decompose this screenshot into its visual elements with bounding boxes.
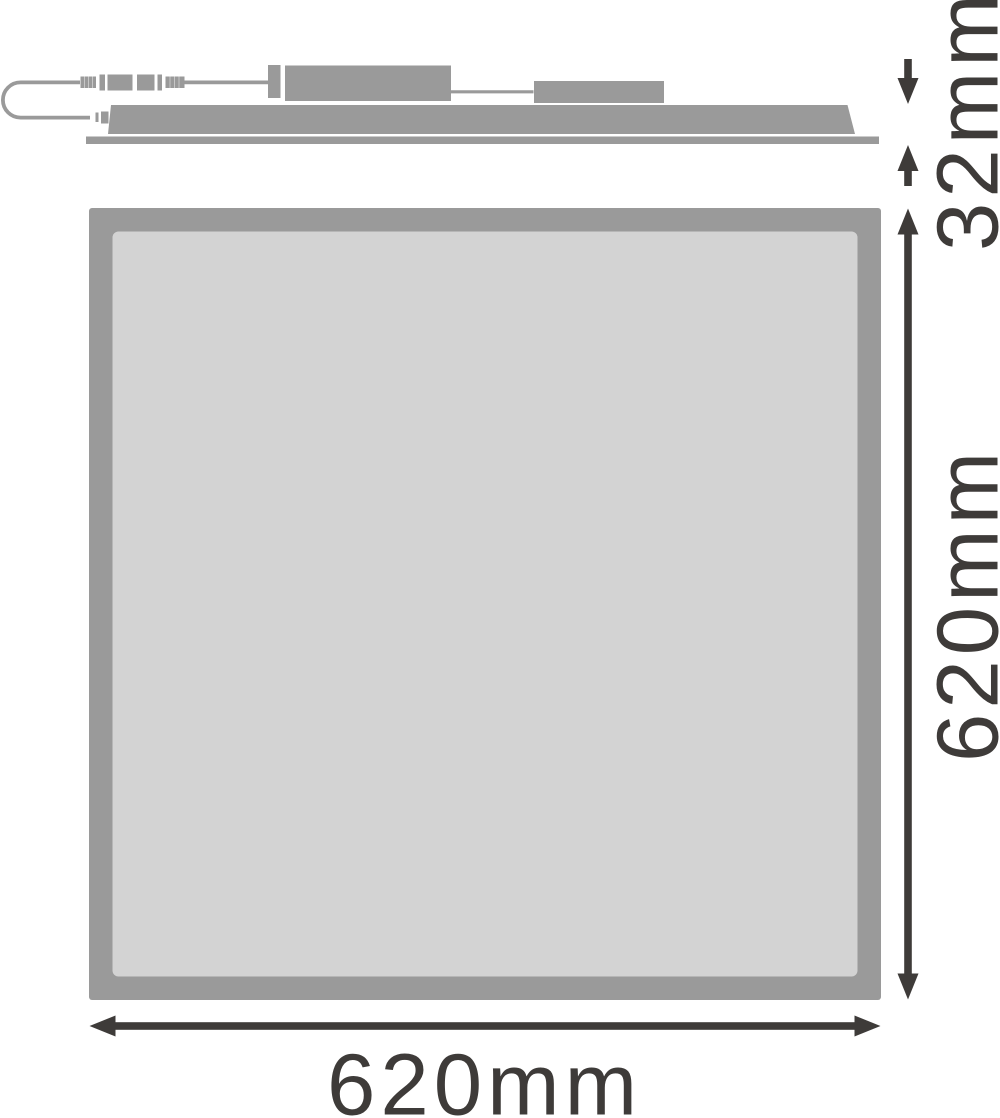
- svg-text:32mm: 32mm: [920, 0, 1000, 251]
- svg-text:620mm: 620mm: [920, 447, 1000, 762]
- svg-text:620mm: 620mm: [327, 1037, 642, 1118]
